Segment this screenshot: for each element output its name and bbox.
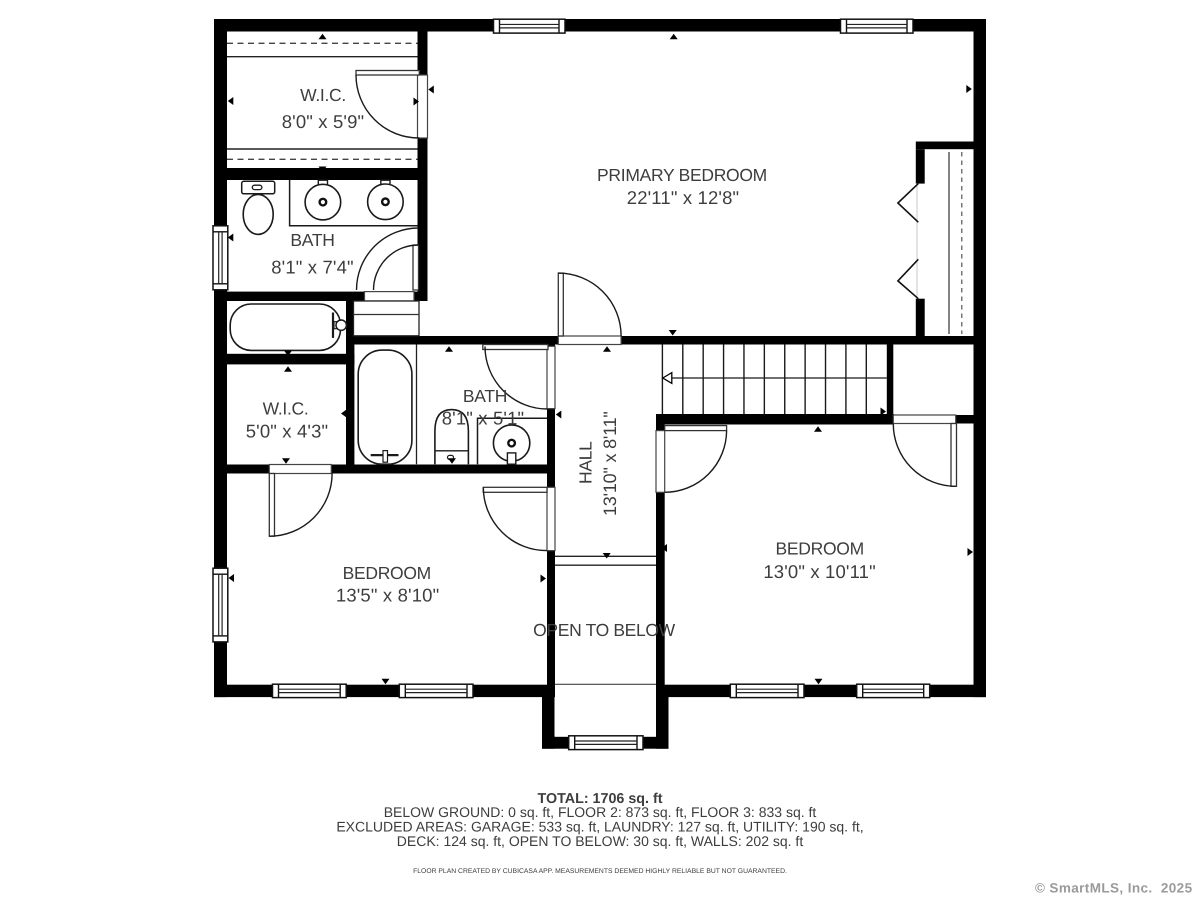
svg-text:8'1" x 5'1": 8'1" x 5'1" bbox=[442, 408, 525, 429]
svg-text:5'0" x 4'3": 5'0" x 4'3" bbox=[246, 420, 329, 441]
svg-text:13'0" x 10'11": 13'0" x 10'11" bbox=[763, 561, 875, 582]
svg-text:13'10" x 8'11": 13'10" x 8'11" bbox=[600, 411, 620, 516]
svg-text:© SmartMLS, Inc. 2025: © SmartMLS, Inc. 2025 bbox=[1035, 880, 1193, 895]
svg-text:W.I.C.: W.I.C. bbox=[263, 399, 309, 419]
svg-text:BEDROOM: BEDROOM bbox=[343, 563, 431, 583]
svg-text:FLOOR PLAN CREATED BY CUBICASA: FLOOR PLAN CREATED BY CUBICASA APP. MEAS… bbox=[413, 868, 787, 875]
svg-text:8'1" x 7'4": 8'1" x 7'4" bbox=[271, 256, 354, 277]
svg-text:BATH: BATH bbox=[290, 230, 334, 250]
svg-text:HALL: HALL bbox=[576, 441, 596, 484]
svg-text:BATH: BATH bbox=[463, 386, 507, 406]
svg-text:W.I.C.: W.I.C. bbox=[300, 85, 346, 105]
svg-text:22'11" x 12'8": 22'11" x 12'8" bbox=[627, 187, 739, 208]
svg-text:13'5" x 8'10": 13'5" x 8'10" bbox=[336, 584, 439, 605]
svg-text:8'0" x 5'9": 8'0" x 5'9" bbox=[282, 111, 365, 132]
svg-text:PRIMARY BEDROOM: PRIMARY BEDROOM bbox=[597, 165, 767, 185]
svg-text:BEDROOM: BEDROOM bbox=[776, 538, 864, 558]
svg-text:DECK: 124 sq. ft, OPEN TO BELO: DECK: 124 sq. ft, OPEN TO BELOW: 30 sq. … bbox=[397, 833, 804, 849]
svg-text:OPEN TO BELOW: OPEN TO BELOW bbox=[533, 620, 675, 640]
